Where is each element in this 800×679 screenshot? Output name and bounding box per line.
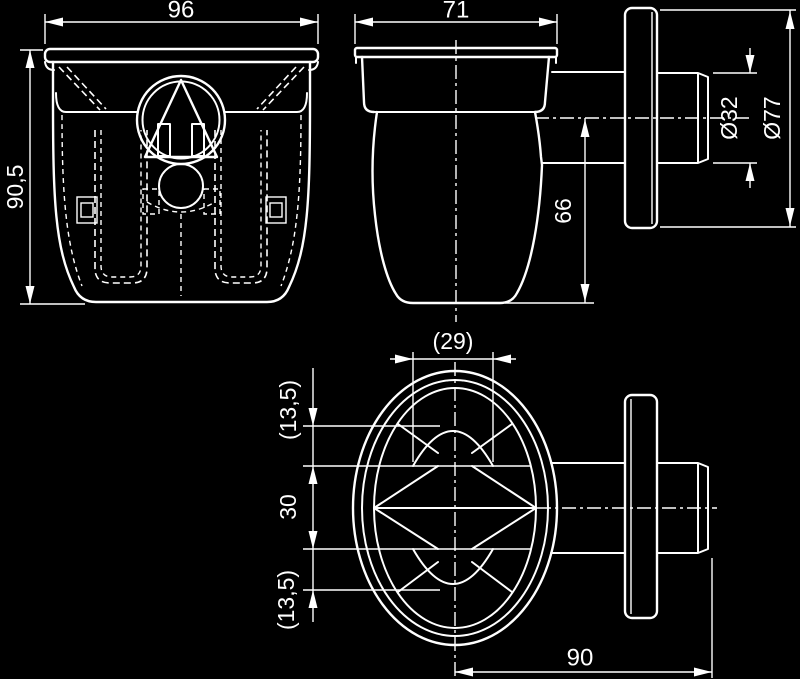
dim-side-height-label: 66	[550, 198, 576, 224]
dim-lower-offset-label: (13,5)	[273, 570, 299, 630]
dimension-pipe-diameter: Ø32	[713, 48, 757, 188]
dim-pipe-diameter-label: Ø32	[716, 96, 742, 139]
plan-flange	[625, 395, 657, 618]
body-outline	[53, 62, 310, 302]
left-boss-hidden	[143, 189, 159, 214]
lid-end-tabs	[45, 62, 318, 70]
dim-flange-diameter-label: Ø77	[759, 96, 785, 139]
plan-bottom-dome-arc	[413, 549, 493, 584]
dim-upper-offset-label: (13,5)	[275, 380, 301, 440]
cup-body-outline	[373, 112, 542, 303]
right-wall-bracket-inner	[270, 203, 282, 217]
right-leg-hidden	[215, 130, 267, 283]
flow-symbol-outer-circle	[137, 76, 225, 164]
drawing-canvas: 96 90,5 71 66	[0, 0, 800, 679]
dim-front-width-label: 96	[168, 0, 195, 24]
dim-middle-span-label: 30	[275, 494, 301, 520]
dim-side-width-label: 71	[443, 0, 470, 24]
left-wall-bracket-inner	[81, 203, 93, 217]
lid-outline	[45, 49, 318, 62]
right-wall-bracket	[266, 197, 286, 223]
plan-view: (29) (13,5) 30 (13,5) 90	[273, 328, 717, 678]
dimension-left-stack: (13,5) 30 (13,5)	[273, 368, 318, 630]
left-leg-hidden	[95, 130, 147, 283]
side-view: 71 66	[355, 0, 752, 322]
left-leg-hidden-inner	[101, 130, 141, 277]
dim-outlet-length-label: 90	[567, 645, 594, 672]
dimension-outlet-length: 90	[455, 558, 712, 678]
dim-grate-width-label: (29)	[433, 328, 474, 354]
plan-top-dome-arc	[413, 431, 493, 466]
technical-drawing: 96 90,5 71 66	[0, 0, 800, 679]
dimension-side-width: 71	[355, 0, 557, 44]
dimension-front-width: 96	[45, 0, 318, 44]
flow-symbol-inner-circle	[143, 82, 220, 159]
dimension-side-height: 66	[505, 118, 594, 303]
outlet-hole-circle	[159, 164, 203, 208]
right-boss-hidden	[204, 189, 220, 214]
plan-outlet-view	[551, 395, 708, 618]
funnel-hidden-walls	[59, 67, 304, 110]
dim-front-height-label: 90,5	[2, 165, 28, 210]
right-leg-hidden-inner	[221, 130, 261, 277]
front-view: 96 90,5	[2, 0, 318, 304]
dimension-front-height: 90,5	[2, 50, 85, 304]
left-wall-bracket	[77, 197, 97, 223]
